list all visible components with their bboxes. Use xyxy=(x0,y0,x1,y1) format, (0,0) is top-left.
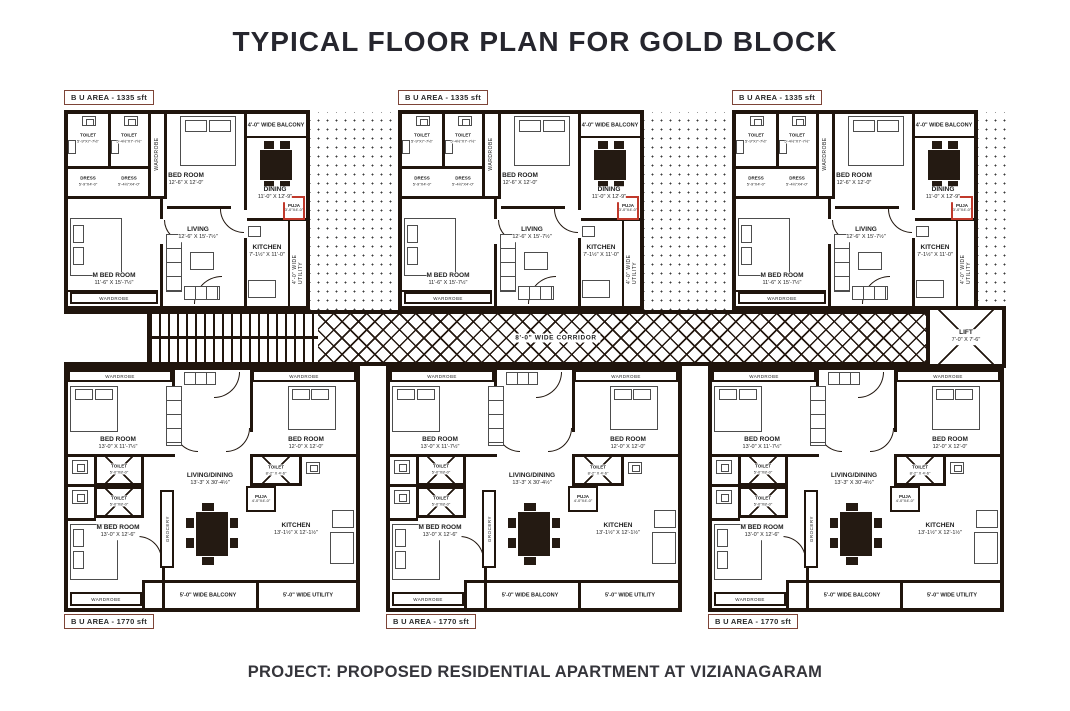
wall xyxy=(68,196,167,199)
chair-icon xyxy=(874,538,882,548)
wardrobe: WARDROBE xyxy=(404,292,492,304)
corridor-floor-pattern xyxy=(318,314,926,362)
wall xyxy=(622,220,624,306)
sofa-icon xyxy=(834,234,850,292)
wall xyxy=(68,518,96,521)
chair-icon xyxy=(846,503,858,511)
area-label-1770: B U AREA - 1770 sft xyxy=(708,614,798,629)
chair-icon xyxy=(524,503,536,511)
area-label-1335: B U AREA - 1335 sft xyxy=(398,90,488,105)
wall xyxy=(900,583,903,608)
room-label-kitchen: KITCHEN13'-1½" X 12'-1½" xyxy=(918,522,962,538)
corridor-label: 8'-0" WIDE CORRIDOR xyxy=(511,334,600,343)
room-label-dress1: DRESS5'-9"X4'-0" xyxy=(747,175,766,186)
room-label-m-bedroom: M BED ROOM13'-0" X 12'-6" xyxy=(741,524,784,540)
chair-icon xyxy=(614,141,624,149)
wc-icon xyxy=(416,116,430,126)
room-label-bedroom: BED ROOM12'-6" X 12'-0" xyxy=(168,172,204,188)
room-label-kitchen: KITCHEN7'-1½" X 11'-0" xyxy=(917,244,953,260)
wardrobe: WARDROBE xyxy=(712,370,816,382)
chair-icon xyxy=(230,538,238,548)
wall xyxy=(786,580,789,608)
wall xyxy=(912,238,915,306)
kitchen-counter-icon xyxy=(654,510,676,528)
room-label-balcony: 5'-0" WIDE BALCONY xyxy=(824,592,880,599)
room-label-toilet-bottom: TOILET5'-0"X8'-0" xyxy=(432,495,451,506)
wardrobe: WARDROBE xyxy=(738,292,826,304)
chair-icon xyxy=(948,141,958,149)
room-label-wardrobe-side: WARDROBE xyxy=(822,137,828,170)
wall xyxy=(494,244,497,306)
bed-icon xyxy=(288,386,336,430)
chair-icon xyxy=(932,141,942,149)
chair-icon xyxy=(552,518,560,528)
wall xyxy=(464,580,678,583)
room-label-dress2: DRESS5'-4½"X4'-0" xyxy=(452,175,474,186)
wall xyxy=(494,199,497,219)
sink-icon xyxy=(72,460,88,474)
room-label-dress2: DRESS5'-4½"X4'-0" xyxy=(786,175,808,186)
apartment-unit-1770-3: WARDROBE WARDROBE WARDROBE GROCERY PUJA4… xyxy=(708,366,1004,612)
chair-icon xyxy=(508,518,516,528)
wall xyxy=(464,580,467,608)
wc-icon xyxy=(306,462,320,474)
kitchen-counter-icon xyxy=(330,532,354,564)
wardrobe: WARDROBE xyxy=(392,592,464,606)
room-label-utility: 4'-0" WIDE UTILITY xyxy=(626,240,638,284)
wardrobe: WARDROBE xyxy=(390,370,494,382)
sofa-icon xyxy=(828,372,860,385)
wall xyxy=(288,220,290,306)
sofa-icon xyxy=(500,234,516,292)
wc-icon xyxy=(792,116,806,126)
door-arc xyxy=(536,372,562,398)
room-label-living: LIVING12'-6" X 15'-7½" xyxy=(846,226,885,242)
wall xyxy=(162,568,165,608)
room-label-bedroom-left: BED ROOM13'-0" X 11'-7½" xyxy=(743,436,782,452)
grocery-store: GROCERY xyxy=(482,490,496,568)
room-label-toilet-top: TOILET5'-0"X8'-0" xyxy=(432,463,451,474)
open-area-hatch xyxy=(978,112,1006,310)
room-label-balcony: 5'-0" WIDE BALCONY xyxy=(502,592,558,599)
grocery-store: GROCERY xyxy=(804,490,818,568)
wall xyxy=(482,114,485,196)
bed-icon xyxy=(932,386,980,430)
wall xyxy=(402,196,501,199)
room-label-dress1: DRESS5'-9"X4'-0" xyxy=(79,175,98,186)
sofa-icon xyxy=(184,286,220,300)
bed-icon xyxy=(848,116,904,166)
bed-icon xyxy=(180,116,236,166)
wardrobe: WARDROBE xyxy=(714,592,786,606)
room-label-living-dining: LIVING/DINING13'-3" X 30'-4½" xyxy=(187,472,233,488)
room-label-living-dining: LIVING/DINING13'-3" X 30'-4½" xyxy=(509,472,555,488)
wall xyxy=(142,580,145,608)
door-arc xyxy=(214,372,240,398)
room-label-dress2: DRESS5'-4½"X4'-0" xyxy=(118,175,140,186)
area-label-1335: B U AREA - 1335 sft xyxy=(732,90,822,105)
wardrobe: WARDROBE xyxy=(896,370,1000,382)
wall xyxy=(167,206,231,209)
sofa-icon xyxy=(518,286,554,300)
wall xyxy=(712,484,738,487)
kitchen-counter-icon xyxy=(976,510,998,528)
sofa-icon xyxy=(488,386,504,446)
area-label-1770: B U AREA - 1770 sft xyxy=(386,614,476,629)
dining-table-icon xyxy=(594,150,626,180)
chair-icon xyxy=(202,557,214,565)
wall xyxy=(68,484,94,487)
bed-icon xyxy=(738,218,790,276)
wall xyxy=(142,580,356,583)
room-label-kitchen: KITCHEN7'-1½" X 11'-0" xyxy=(249,244,285,260)
sofa-icon xyxy=(166,234,182,292)
room-label-toilet-top: TOILET5'-0"X8'-0" xyxy=(110,463,129,474)
chair-icon xyxy=(202,503,214,511)
kitchen-counter-icon xyxy=(582,280,610,298)
wc-icon xyxy=(628,462,642,474)
sink-icon xyxy=(736,140,744,154)
room-label-dining: DINING11'-0" X 12'-9" xyxy=(258,186,292,202)
grocery-store: GROCERY xyxy=(160,490,174,568)
wc-icon xyxy=(124,116,138,126)
sofa-icon xyxy=(506,372,538,385)
sink-icon xyxy=(72,490,88,504)
room-label-toilet2: TOILET5'-4½"X7'-7½" xyxy=(784,132,809,143)
project-title: PROJECT: PROPOSED RESIDENTIAL APARTMENT … xyxy=(0,663,1070,682)
bed-icon xyxy=(514,116,570,166)
wall xyxy=(160,199,163,219)
wall xyxy=(816,114,819,196)
room-label-balcony: 4'-0" WIDE BALCONY xyxy=(916,122,972,129)
wall xyxy=(244,238,247,306)
wall xyxy=(578,238,581,306)
room-label-m-bedroom: M BED ROOM13'-0" X 12'-6" xyxy=(419,524,462,540)
wall xyxy=(578,583,581,608)
chair-icon xyxy=(830,538,838,548)
coffee-table-icon xyxy=(524,252,548,270)
room-label-utility: 4'-0" WIDE UTILITY xyxy=(960,240,972,284)
chair-icon xyxy=(230,518,238,528)
sofa-icon xyxy=(852,286,888,300)
puja-shrine: PUJA4'-0"X4'-0" xyxy=(246,486,276,512)
room-label-toilet2: TOILET5'-4½"X7'-7½" xyxy=(450,132,475,143)
kitchen-sink-icon xyxy=(582,226,595,237)
room-label-wardrobe-side: WARDROBE xyxy=(154,137,160,170)
dining-table-icon xyxy=(196,512,228,556)
coffee-table-icon xyxy=(858,252,882,270)
stair-landing-divider xyxy=(150,336,318,339)
wardrobe: WARDROBE xyxy=(70,592,142,606)
room-label-toilet-right: TOILET8'-2" X 4'-6" xyxy=(588,464,609,475)
wall xyxy=(828,199,831,219)
bed-icon xyxy=(404,218,456,276)
wall xyxy=(256,583,259,608)
stair-landing xyxy=(64,314,150,362)
wall xyxy=(915,136,974,138)
room-label-bedroom-right: BED ROOM12'-0" X 12'-0" xyxy=(288,436,324,452)
door-arc xyxy=(554,209,578,233)
dining-table-icon xyxy=(260,150,292,180)
room-label-toilet1: TOILET5'-9"X7'-7½" xyxy=(411,132,433,143)
room-label-toilet-bottom: TOILET5'-0"X8'-0" xyxy=(754,495,773,506)
room-label-balcony: 5'-0" WIDE BALCONY xyxy=(180,592,236,599)
bed-icon xyxy=(392,386,440,432)
sink-icon xyxy=(716,460,732,474)
chair-icon xyxy=(280,141,290,149)
sink-icon xyxy=(716,490,732,504)
chair-icon xyxy=(552,538,560,548)
wall xyxy=(712,518,740,521)
wall xyxy=(828,244,831,306)
room-label-bedroom: BED ROOM12'-6" X 12'-0" xyxy=(502,172,538,188)
chair-icon xyxy=(830,518,838,528)
wardrobe: WARDROBE xyxy=(68,370,172,382)
coffee-table-icon xyxy=(190,252,214,270)
wall xyxy=(578,114,581,210)
wall xyxy=(148,114,151,196)
chair-icon xyxy=(508,538,516,548)
room-label-m-bedroom: M BED ROOM11'-6" X 15'-7½" xyxy=(427,272,470,288)
lift: LIFT7'-0" X 7'-6" xyxy=(926,306,1006,368)
door-arc xyxy=(888,209,912,233)
apartment-unit-1335-2: TOILET5'-9"X7'-7½" TOILET5'-4½"X7'-7½" D… xyxy=(398,110,644,310)
room-label-living: LIVING12'-6" X 15'-7½" xyxy=(512,226,551,242)
kitchen-sink-icon xyxy=(916,226,929,237)
room-label-toilet-right: TOILET8'-2" X 4'-6" xyxy=(910,464,931,475)
bed-icon xyxy=(610,386,658,430)
room-label-m-bedroom: M BED ROOM11'-6" X 15'-7½" xyxy=(93,272,136,288)
room-label-toilet2: TOILET5'-4½"X7'-7½" xyxy=(116,132,141,143)
kitchen-sink-icon xyxy=(248,226,261,237)
dining-table-icon xyxy=(840,512,872,556)
kitchen-counter-icon xyxy=(974,532,998,564)
room-label-m-bedroom: M BED ROOM13'-0" X 12'-6" xyxy=(97,524,140,540)
room-label-living-dining: LIVING/DINING13'-3" X 30'-4½" xyxy=(831,472,877,488)
chair-icon xyxy=(524,557,536,565)
wall xyxy=(498,114,501,196)
wall xyxy=(736,196,835,199)
wall xyxy=(736,166,818,169)
wall xyxy=(501,206,565,209)
sofa-icon xyxy=(810,386,826,446)
apartment-unit-1770-1: WARDROBE WARDROBE WARDROBE GROCERY PUJA4… xyxy=(64,366,360,612)
wall xyxy=(68,166,150,169)
wall xyxy=(247,136,306,138)
apartment-unit-1335-3: TOILET5'-9"X7'-7½" TOILET5'-4½"X7'-7½" D… xyxy=(732,110,978,310)
room-label-bedroom-right: BED ROOM12'-0" X 12'-0" xyxy=(610,436,646,452)
apartment-unit-1770-2: WARDROBE WARDROBE WARDROBE GROCERY PUJA4… xyxy=(386,366,682,612)
door-arc xyxy=(460,536,484,560)
room-label-bedroom: BED ROOM12'-6" X 12'-0" xyxy=(836,172,872,188)
wall xyxy=(832,114,835,196)
room-label-utility: 5'-0" WIDE UTILITY xyxy=(927,592,977,599)
door-arc xyxy=(220,209,244,233)
room-label-living: LIVING12'-6" X 15'-7½" xyxy=(178,226,217,242)
door-arc xyxy=(858,372,884,398)
open-area-hatch xyxy=(644,112,732,310)
chair-icon xyxy=(186,538,194,548)
puja-shrine: PUJA4'-0"X4'-0" xyxy=(568,486,598,512)
chair-icon xyxy=(846,557,858,565)
wardrobe: WARDROBE xyxy=(252,370,356,382)
open-area-hatch xyxy=(310,112,398,310)
dining-table-icon xyxy=(518,512,550,556)
bed-icon xyxy=(714,386,762,432)
kitchen-counter-icon xyxy=(652,532,676,564)
floor-plan: TYPICAL FLOOR PLAN FOR GOLD BLOCK B U AR… xyxy=(0,0,1070,711)
room-label-toilet-right: TOILET8'-2" X 4'-6" xyxy=(266,464,287,475)
wall xyxy=(164,114,167,196)
door-arc xyxy=(226,428,250,452)
puja-shrine: PUJA4'-0"X4'-0" xyxy=(890,486,920,512)
kitchen-counter-icon xyxy=(332,510,354,528)
wall xyxy=(835,206,899,209)
wc-icon xyxy=(950,462,964,474)
wc-icon xyxy=(458,116,472,126)
wc-icon xyxy=(82,116,96,126)
wall xyxy=(484,568,487,608)
sink-icon xyxy=(394,460,410,474)
corridor: 8'-0" WIDE CORRIDOR xyxy=(64,310,1006,366)
room-label-m-bedroom: M BED ROOM11'-6" X 15'-7½" xyxy=(761,272,804,288)
room-label-bedroom-right: BED ROOM12'-0" X 12'-0" xyxy=(932,436,968,452)
sofa-icon xyxy=(166,386,182,446)
room-label-toilet1: TOILET5'-9"X7'-7½" xyxy=(745,132,767,143)
wall xyxy=(390,518,418,521)
chair-icon xyxy=(264,141,274,149)
room-label-bedroom-left: BED ROOM13'-0" X 11'-7½" xyxy=(421,436,460,452)
chair-icon xyxy=(874,518,882,528)
room-label-utility: 5'-0" WIDE UTILITY xyxy=(605,592,655,599)
chair-icon xyxy=(598,141,608,149)
room-label-utility: 4'-0" WIDE UTILITY xyxy=(292,240,304,284)
room-label-dress1: DRESS5'-9"X4'-0" xyxy=(413,175,432,186)
door-arc xyxy=(870,428,894,452)
wall xyxy=(390,484,416,487)
room-label-toilet-bottom: TOILET5'-0"X8'-0" xyxy=(110,495,129,506)
room-label-wardrobe-side: WARDROBE xyxy=(488,137,494,170)
wardrobe: WARDROBE xyxy=(70,292,158,304)
dining-table-icon xyxy=(928,150,960,180)
sink-icon xyxy=(394,490,410,504)
room-label-kitchen: KITCHEN13'-1½" X 12'-1½" xyxy=(596,522,640,538)
room-label-kitchen: KITCHEN13'-1½" X 12'-1½" xyxy=(274,522,318,538)
wall xyxy=(244,114,247,210)
room-label-kitchen: KITCHEN7'-1½" X 11'-0" xyxy=(583,244,619,260)
room-label-dining: DINING11'-0" X 12'-9" xyxy=(926,186,960,202)
room-label-toilet1: TOILET5'-9"X7'-7½" xyxy=(77,132,99,143)
room-label-utility: 5'-0" WIDE UTILITY xyxy=(283,592,333,599)
kitchen-counter-icon xyxy=(916,280,944,298)
bed-icon xyxy=(70,218,122,276)
wall xyxy=(786,580,1000,583)
room-label-bedroom-left: BED ROOM13'-0" X 11'-7½" xyxy=(99,436,138,452)
wall xyxy=(806,568,809,608)
wall xyxy=(912,114,915,210)
room-label-balcony: 4'-0" WIDE BALCONY xyxy=(582,122,638,129)
sink-icon xyxy=(402,140,410,154)
door-arc xyxy=(138,536,162,560)
room-label-dining: DINING11'-0" X 12'-9" xyxy=(592,186,626,202)
wall xyxy=(160,244,163,306)
room-label-balcony: 4'-0" WIDE BALCONY xyxy=(248,122,304,129)
door-arc xyxy=(782,536,806,560)
chair-icon xyxy=(186,518,194,528)
room-label-toilet-top: TOILET5'-0"X8'-0" xyxy=(754,463,773,474)
wall xyxy=(956,220,958,306)
wall xyxy=(402,166,484,169)
apartment-unit-1335-1: TOILET5'-9"X7'-7½" TOILET5'-4½"X7'-7½" D… xyxy=(64,110,310,310)
area-label-1770: B U AREA - 1770 sft xyxy=(64,614,154,629)
sink-icon xyxy=(68,140,76,154)
wardrobe: WARDROBE xyxy=(574,370,678,382)
area-label-1335: B U AREA - 1335 sft xyxy=(64,90,154,105)
kitchen-counter-icon xyxy=(248,280,276,298)
wall xyxy=(581,136,640,138)
lift-label: LIFT7'-0" X 7'-6" xyxy=(952,329,981,345)
door-arc xyxy=(548,428,572,452)
page-title: TYPICAL FLOOR PLAN FOR GOLD BLOCK xyxy=(0,26,1070,58)
wc-icon xyxy=(750,116,764,126)
bed-icon xyxy=(70,386,118,432)
sofa-icon xyxy=(184,372,216,385)
